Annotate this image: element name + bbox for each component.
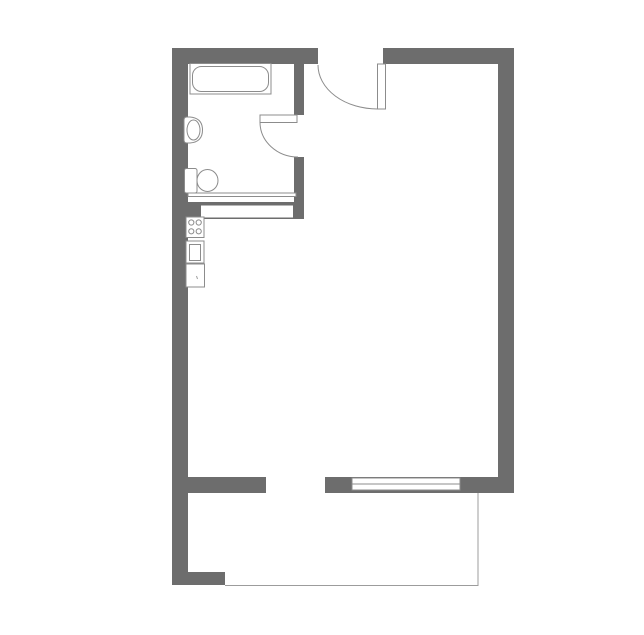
entrance-door-swing	[318, 65, 378, 109]
entrance-door-leaf	[378, 64, 386, 109]
burner-bottom-left	[189, 229, 194, 234]
wall-top-left	[172, 48, 318, 64]
bath-thin-partition	[188, 193, 296, 197]
kitchen-sink-basin	[190, 245, 201, 261]
washbasin-bowl	[187, 120, 200, 140]
wall-bottom-right	[460, 477, 514, 493]
wall-bottom-left	[172, 477, 266, 493]
toilet-bowl	[197, 170, 218, 192]
kitchen-fixtures	[186, 217, 205, 287]
burner-top-left	[189, 220, 194, 225]
bathroom-fixtures	[184, 64, 271, 194]
floor-plan-svg	[0, 0, 644, 635]
wall-bottom-mid	[325, 477, 352, 493]
wall-right	[498, 48, 514, 493]
toilet-tank	[185, 169, 198, 194]
bath-wall-slot	[201, 206, 293, 218]
wall-partition-upper	[294, 64, 304, 115]
balcony	[225, 493, 479, 586]
burner-top-right	[196, 220, 201, 225]
bathtub-basin	[193, 67, 269, 92]
bathroom-door-swing	[260, 122, 298, 157]
wall-left-foot	[172, 572, 225, 585]
kitchen-counter	[186, 264, 205, 287]
openings	[188, 193, 460, 490]
floor-plan	[0, 0, 644, 635]
cooktop	[186, 217, 204, 238]
doors	[260, 64, 386, 157]
bathroom-door-leaf	[260, 115, 297, 123]
wall-top-right	[383, 48, 514, 64]
walls	[172, 48, 514, 585]
burner-bottom-right	[196, 229, 201, 234]
